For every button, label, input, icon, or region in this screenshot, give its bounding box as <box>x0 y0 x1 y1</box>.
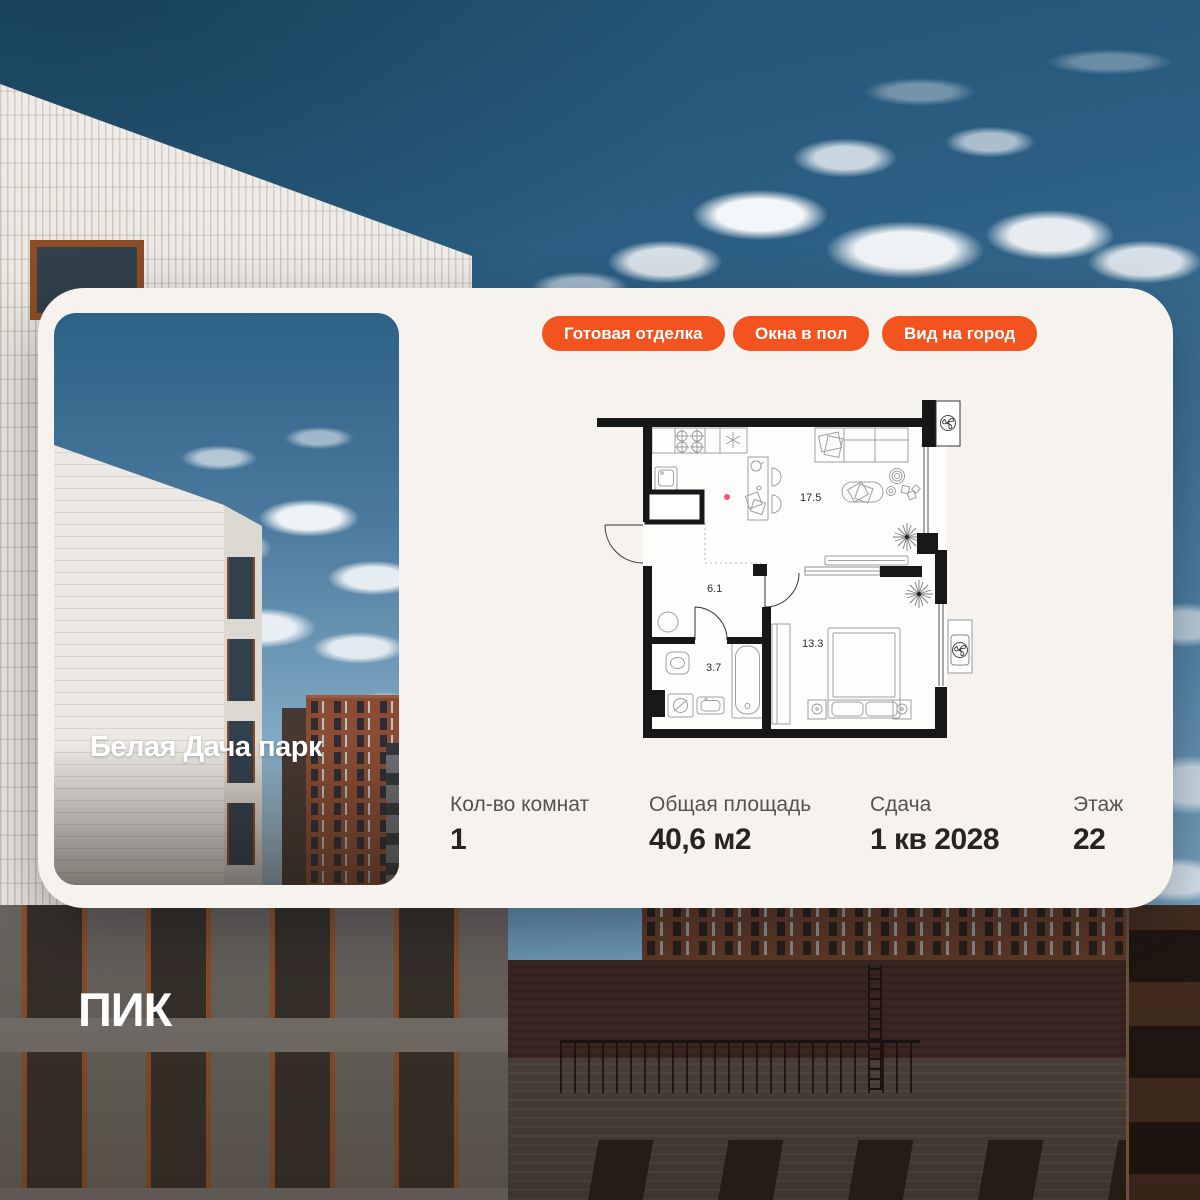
badge-floor-windows: Окна в пол <box>733 316 869 351</box>
floor-plan: 17.5 6.1 3.7 13.3 <box>590 390 975 745</box>
project-photo: Белая Дача парк <box>54 313 399 885</box>
fan-icon <box>941 416 956 431</box>
stat-rooms: Кол-во комнат 1 <box>450 793 589 857</box>
stat-area: Общая площадь 40,6 м2 <box>649 793 811 857</box>
background-roof-ladder <box>868 965 882 1090</box>
room-area-hallway: 6.1 <box>707 583 722 595</box>
apartment-card: Белая Дача парк Готовая отделка Окна в п… <box>38 288 1173 908</box>
stat-floor-label: Этаж <box>1073 793 1123 817</box>
listing-banner: ПИК Белая Дача парк Готовая отделка Окна… <box>0 0 1200 1200</box>
stat-delivery-value: 1 кв 2028 <box>870 823 999 857</box>
room-area-bathroom: 3.7 <box>706 662 721 674</box>
background-building-bottom-left <box>0 905 508 1200</box>
background-bottom-windows <box>560 1140 1168 1200</box>
stat-rooms-value: 1 <box>450 823 589 857</box>
stat-floor-value: 22 <box>1073 823 1123 857</box>
stat-area-label: Общая площадь <box>649 793 811 817</box>
floor-plan-svg: 17.5 6.1 3.7 13.3 <box>590 390 975 745</box>
pik-logo: ПИК <box>78 986 171 1033</box>
badge-city-view: Вид на город <box>882 316 1037 351</box>
stat-floor: Этаж 22 <box>1073 793 1123 857</box>
photo-bottom-dim <box>54 743 399 885</box>
fan-icon <box>953 643 968 658</box>
plan-marker-dot <box>724 494 730 500</box>
plan-floor <box>643 418 947 738</box>
stat-rooms-label: Кол-во комнат <box>450 793 589 817</box>
background-building-bottom-right <box>1126 905 1200 1200</box>
plan-entry-closet <box>647 492 702 522</box>
stat-delivery: Сдача 1 кв 2028 <box>870 793 999 857</box>
stat-delivery-label: Сдача <box>870 793 999 817</box>
room-area-kitchen-living: 17.5 <box>800 492 821 504</box>
room-area-bedroom: 13.3 <box>802 638 823 650</box>
project-name: Белая Дача парк <box>90 731 322 764</box>
stat-area-value: 40,6 м2 <box>649 823 811 857</box>
background-roof-railing <box>560 1040 920 1093</box>
badge-finishing: Готовая отделка <box>542 316 725 351</box>
